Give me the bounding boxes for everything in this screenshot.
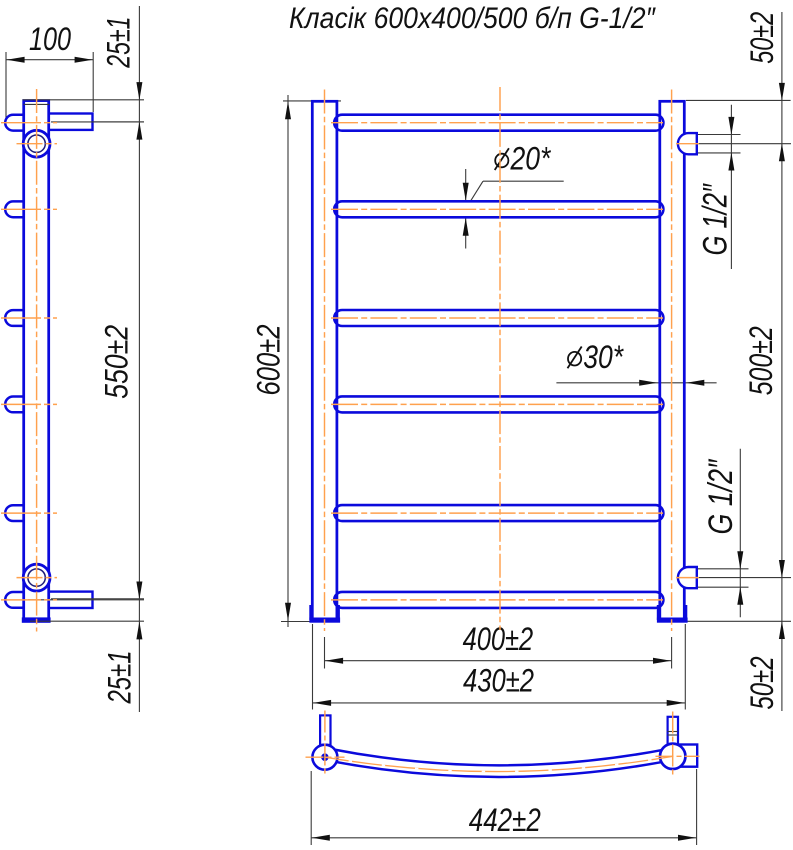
- svg-text:442±2: 442±2: [469, 802, 541, 838]
- svg-text:Класік 600х400/500 б/п G-1/2″: Класік 600х400/500 б/п G-1/2″: [289, 2, 656, 35]
- svg-text:20*: 20*: [510, 141, 552, 177]
- svg-text:600±2: 600±2: [251, 324, 287, 395]
- svg-text:G 1/2″: G 1/2″: [702, 459, 740, 535]
- svg-text:30*: 30*: [583, 339, 624, 375]
- svg-text:50±2: 50±2: [744, 12, 780, 64]
- svg-text:25±1: 25±1: [102, 651, 138, 705]
- svg-text:G 1/2″: G 1/2″: [697, 183, 735, 255]
- svg-text:25±1: 25±1: [101, 17, 137, 69]
- svg-text:400±2: 400±2: [463, 621, 534, 657]
- svg-text:50±2: 50±2: [744, 656, 780, 709]
- svg-text:100: 100: [29, 21, 71, 57]
- svg-text:550±2: 550±2: [99, 325, 135, 399]
- svg-text:430±2: 430±2: [463, 663, 534, 699]
- svg-text:500±2: 500±2: [743, 326, 779, 395]
